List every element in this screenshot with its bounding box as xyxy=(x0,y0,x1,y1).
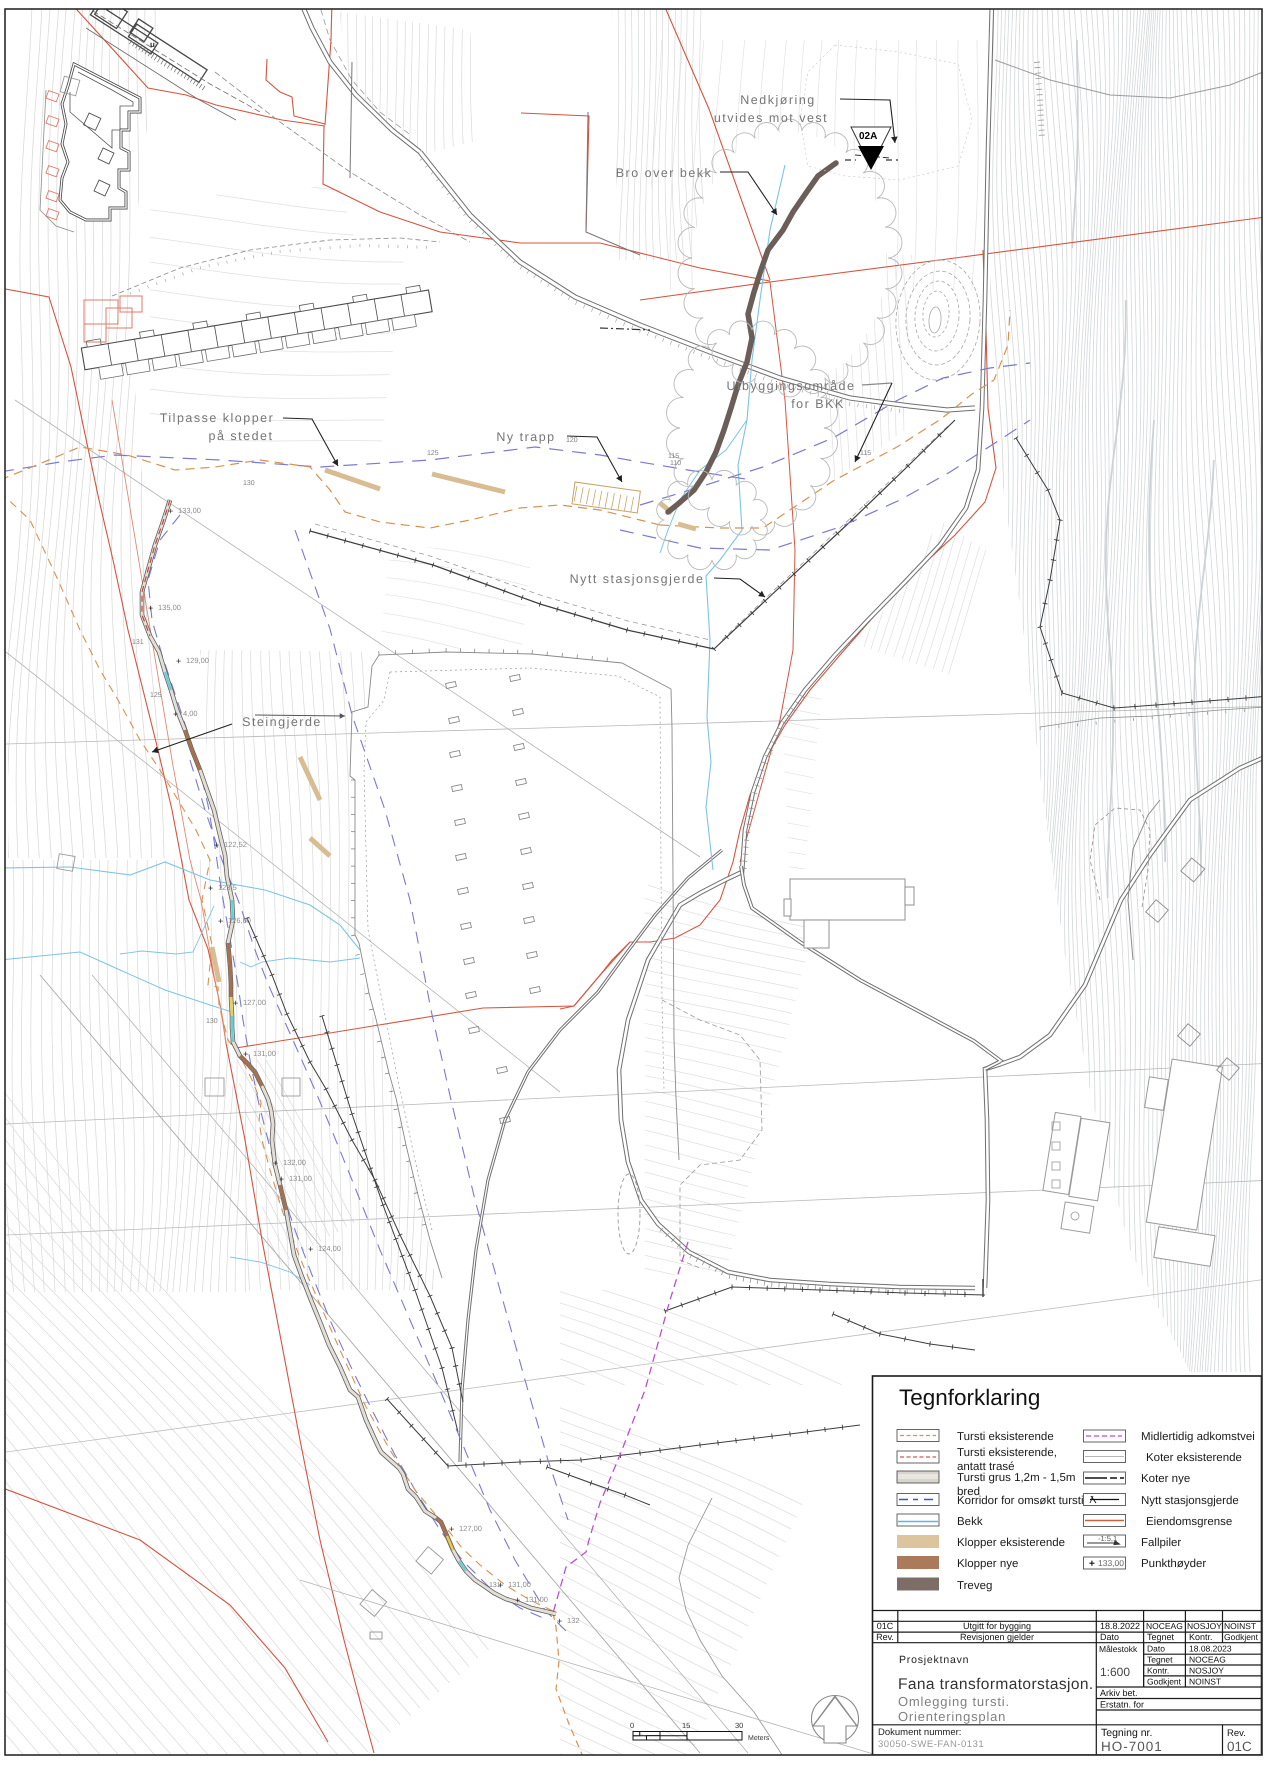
svg-text:Rev.: Rev. xyxy=(1227,1728,1246,1739)
svg-text:130: 130 xyxy=(206,1018,218,1025)
svg-text:18.8.2022: 18.8.2022 xyxy=(1100,1621,1140,1631)
svg-text:Kontr.: Kontr. xyxy=(1147,1665,1169,1675)
svg-text:115: 115 xyxy=(860,450,871,457)
svg-text:120: 120 xyxy=(566,437,578,444)
svg-text:Godkjent: Godkjent xyxy=(1147,1676,1182,1686)
svg-text:Midlertidig adkomstvei: Midlertidig adkomstvei xyxy=(1141,1431,1255,1443)
svg-text:Treveg: Treveg xyxy=(957,1580,992,1592)
svg-text:+: + xyxy=(498,1580,503,1590)
svg-text:+: + xyxy=(279,1174,284,1184)
svg-text:18.08.2023: 18.08.2023 xyxy=(1189,1644,1232,1654)
svg-text:Koter eksisterende: Koter eksisterende xyxy=(1146,1452,1242,1464)
svg-text:Målestokk: Målestokk xyxy=(1099,1644,1138,1654)
svg-text:Dokument nummer:: Dokument nummer: xyxy=(878,1727,961,1738)
svg-text:Tursti eksisterende,: Tursti eksisterende, xyxy=(957,1447,1057,1459)
svg-text:NOCEAG: NOCEAG xyxy=(1189,1655,1226,1665)
svg-text:4,00: 4,00 xyxy=(183,709,198,718)
svg-text:135,00: 135,00 xyxy=(158,603,181,612)
svg-text:Nytt stasjonsgjerde: Nytt stasjonsgjerde xyxy=(1141,1495,1239,1507)
svg-text:Klopper nye: Klopper nye xyxy=(957,1558,1018,1570)
svg-text:Tegning nr.: Tegning nr. xyxy=(1101,1727,1152,1739)
svg-text:130: 130 xyxy=(243,480,255,487)
svg-text:Steingjerde: Steingjerde xyxy=(242,715,322,729)
svg-text:131,00: 131,00 xyxy=(508,1580,531,1589)
svg-text:Eiendomsgrense: Eiendomsgrense xyxy=(1146,1516,1232,1528)
svg-text:133,00: 133,00 xyxy=(1098,1558,1124,1568)
svg-text:110: 110 xyxy=(670,460,681,467)
svg-text:+: + xyxy=(168,506,173,516)
svg-text:Kontr.: Kontr. xyxy=(1189,1632,1213,1642)
svg-text:+: + xyxy=(148,603,153,613)
svg-text:Tegnforklaring: Tegnforklaring xyxy=(899,1385,1040,1410)
svg-text:Tegnet: Tegnet xyxy=(1147,1632,1175,1642)
svg-text:+: + xyxy=(176,656,181,666)
svg-text:Bekk: Bekk xyxy=(957,1516,983,1528)
svg-text:131,00: 131,00 xyxy=(253,1049,276,1058)
svg-text:Ny trapp: Ny trapp xyxy=(496,430,555,444)
svg-text:NOINST: NOINST xyxy=(1224,1621,1256,1631)
svg-text:132,00: 132,00 xyxy=(283,1158,306,1167)
svg-text:på stedet: på stedet xyxy=(209,429,274,443)
svg-text:+: + xyxy=(557,1616,562,1626)
svg-text:127,00: 127,00 xyxy=(243,998,266,1007)
svg-text:Nytt stasjonsgjerde: Nytt stasjonsgjerde xyxy=(570,572,705,586)
svg-text:0: 0 xyxy=(630,1721,634,1730)
svg-text:131: 131 xyxy=(132,639,144,646)
svg-text:+: + xyxy=(173,709,178,719)
svg-text:129,00: 129,00 xyxy=(186,656,209,665)
svg-text:u: u xyxy=(150,40,155,49)
svg-text:NOSJOY: NOSJOY xyxy=(1189,1665,1224,1675)
svg-text:+: + xyxy=(515,1595,520,1605)
svg-text:Klopper eksisterende: Klopper eksisterende xyxy=(957,1537,1065,1549)
svg-text:Revisjonen gjelder: Revisjonen gjelder xyxy=(960,1632,1034,1642)
svg-text:HO-7001: HO-7001 xyxy=(1101,1739,1163,1754)
svg-text:01C: 01C xyxy=(877,1621,894,1631)
svg-text:Utbyggingsområde: Utbyggingsområde xyxy=(727,379,856,393)
svg-text:30050-SWE-FAN-0131: 30050-SWE-FAN-0131 xyxy=(878,1739,984,1750)
svg-text:132: 132 xyxy=(567,1616,580,1625)
svg-text:+: + xyxy=(449,1524,454,1534)
svg-text:Tursti grus 1,2m - 1,5m: Tursti grus 1,2m - 1,5m xyxy=(957,1472,1075,1484)
svg-text:+: + xyxy=(218,916,223,926)
svg-text:Punkthøyder: Punkthøyder xyxy=(1141,1558,1206,1570)
svg-text:NOSJOY: NOSJOY xyxy=(1187,1621,1222,1631)
svg-text:for BKK: for BKK xyxy=(791,397,845,411)
svg-text:+: + xyxy=(214,840,219,850)
svg-text:+: + xyxy=(243,1049,248,1059)
svg-text:126,00: 126,00 xyxy=(228,916,251,925)
svg-text:131,00: 131,00 xyxy=(525,1595,548,1604)
svg-text:Prosjektnavn: Prosjektnavn xyxy=(899,1654,969,1666)
svg-text:Meters: Meters xyxy=(748,1735,770,1742)
svg-text:127,00: 127,00 xyxy=(459,1524,482,1533)
svg-text:Dato: Dato xyxy=(1100,1632,1119,1642)
svg-text:-1:5,1: -1:5,1 xyxy=(1098,1534,1117,1543)
svg-text:NOINST: NOINST xyxy=(1189,1676,1221,1686)
svg-text:Koter nye: Koter nye xyxy=(1141,1473,1190,1485)
svg-text:133,00: 133,00 xyxy=(178,506,201,515)
svg-text:115: 115 xyxy=(668,453,679,460)
svg-text:30: 30 xyxy=(735,1721,743,1730)
svg-text:1:600: 1:600 xyxy=(1100,1665,1130,1679)
svg-text:Arkiv bet.: Arkiv bet. xyxy=(1100,1688,1138,1698)
svg-text:124,00: 124,00 xyxy=(318,1244,341,1253)
svg-text:125: 125 xyxy=(427,450,439,457)
svg-text:15: 15 xyxy=(682,1721,690,1730)
svg-text:utvides mot vest: utvides mot vest xyxy=(714,111,828,125)
svg-text:01C: 01C xyxy=(1227,1739,1252,1754)
svg-text:122,52: 122,52 xyxy=(224,840,247,849)
svg-text:+: + xyxy=(308,1244,313,1254)
svg-text:131,00: 131,00 xyxy=(289,1174,312,1183)
svg-text:Rev.: Rev. xyxy=(876,1632,894,1642)
svg-text:Fallpiler: Fallpiler xyxy=(1141,1537,1181,1549)
svg-text:Erstatn. for: Erstatn. for xyxy=(1100,1700,1144,1710)
svg-text:Omlegging tursti.: Omlegging tursti. xyxy=(898,1694,1010,1709)
svg-text:Godkjent: Godkjent xyxy=(1224,1632,1259,1642)
svg-text:Orienteringsplan: Orienteringsplan xyxy=(898,1709,1006,1724)
svg-text:+: + xyxy=(1089,1559,1095,1570)
svg-text:NOCEAG: NOCEAG xyxy=(1146,1621,1183,1631)
svg-text:Korridor for omsøkt tursti: Korridor for omsøkt tursti xyxy=(957,1495,1084,1507)
svg-text:Tegnet: Tegnet xyxy=(1147,1655,1173,1665)
svg-text:123,5: 123,5 xyxy=(218,883,237,892)
svg-text:02A: 02A xyxy=(859,131,877,142)
svg-text:Tursti eksisterende: Tursti eksisterende xyxy=(957,1431,1054,1443)
svg-text:Nedkjøring: Nedkjøring xyxy=(740,93,815,107)
svg-text:Bro over bekk: Bro over bekk xyxy=(616,166,713,180)
svg-text:Tilpasse klopper: Tilpasse klopper xyxy=(160,411,275,425)
svg-text:Fana transformatorstasjon.: Fana transformatorstasjon. xyxy=(898,1676,1094,1693)
svg-text:+: + xyxy=(233,998,238,1008)
svg-text:Utgitt for bygging: Utgitt for bygging xyxy=(963,1621,1031,1631)
svg-text:Dato: Dato xyxy=(1147,1644,1165,1654)
svg-text:+: + xyxy=(208,883,213,893)
svg-text:+: + xyxy=(273,1158,278,1168)
svg-text:125: 125 xyxy=(150,692,162,699)
